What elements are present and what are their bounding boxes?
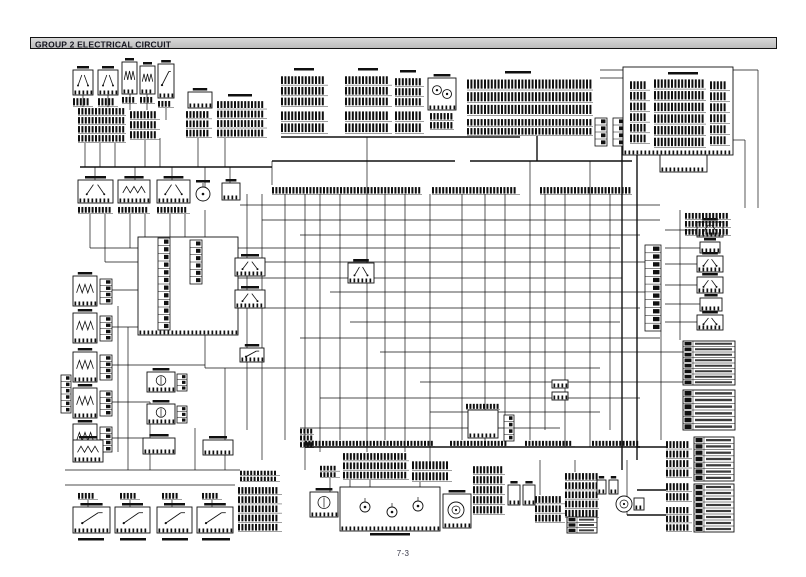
component-box (660, 155, 707, 172)
connector-strip (100, 355, 112, 380)
component-box (73, 309, 97, 343)
connector-strip (100, 316, 112, 341)
connector-pin-block (186, 111, 212, 137)
connector-pin-block (540, 187, 632, 194)
component-box (700, 238, 720, 253)
component-box (348, 259, 374, 283)
connector-strip (177, 374, 187, 391)
connector-pin-block (305, 441, 435, 447)
component-box (157, 503, 192, 533)
connector-pin-block (78, 108, 126, 142)
component-box (697, 311, 723, 330)
connector-strip (190, 240, 202, 284)
circular-component (196, 183, 210, 201)
connector-pin-block (343, 453, 409, 479)
connector-strip (645, 245, 661, 331)
connector-pin-block (345, 111, 392, 133)
connector-pin-block (78, 207, 113, 214)
component-box (609, 476, 618, 494)
connector-pin-block (467, 80, 593, 116)
component-label (370, 533, 410, 536)
connector-pin-block (158, 101, 174, 108)
component-box (98, 66, 118, 95)
component-box (468, 410, 498, 438)
component-box (523, 481, 535, 505)
connector-pin-block (281, 111, 328, 133)
component-box (310, 488, 338, 517)
connector-pin-block (412, 461, 452, 481)
component-box (73, 348, 97, 382)
component-label (358, 68, 378, 71)
circular-component (448, 502, 464, 518)
connector-pin-block (240, 471, 280, 482)
connector-pin-block (473, 466, 505, 514)
connector-pin-block (535, 496, 565, 522)
component-box (240, 344, 264, 362)
component-box (235, 254, 265, 276)
connector-pin-block (565, 473, 599, 517)
component-label (202, 538, 230, 541)
component-box (73, 384, 97, 418)
connector-pin-block (202, 493, 222, 500)
connector-strip (61, 375, 71, 413)
connector-pin-block (272, 187, 422, 194)
component-box (147, 368, 175, 392)
terminal-table (683, 390, 735, 430)
connector-pin-block (130, 111, 160, 139)
connector-pin-block (467, 119, 593, 135)
component-label (228, 94, 252, 97)
connector-pin-block (120, 493, 140, 500)
connector-pin-block (157, 207, 190, 214)
component-box (73, 66, 93, 95)
connector-pin-block (466, 404, 500, 410)
terminal-table (694, 484, 734, 532)
component-box (147, 400, 175, 424)
connector-pin-block (666, 441, 692, 477)
connector-pin-block (430, 113, 454, 129)
component-box (140, 62, 155, 94)
component-label (162, 538, 188, 541)
component-box (552, 392, 568, 400)
component-box (115, 503, 150, 533)
component-box (157, 176, 190, 203)
component-box (197, 503, 233, 533)
connector-pin-block (592, 441, 640, 447)
component-label (294, 68, 314, 71)
circular-component (616, 496, 632, 512)
connector-pin-block (320, 466, 340, 478)
terminal-table (694, 437, 734, 481)
schematic-diagram (0, 0, 806, 577)
terminal-table (567, 517, 597, 533)
connector-strip (177, 406, 187, 423)
component-label (78, 538, 104, 541)
component-box (73, 503, 110, 533)
manual-page: GROUP 2 ELECTRICAL CIRCUIT 7-3 (0, 0, 806, 577)
component-label (196, 180, 210, 183)
component-box (188, 88, 212, 108)
component-box (508, 481, 520, 505)
component-box (235, 286, 265, 308)
component-box (700, 294, 722, 311)
component-box (597, 476, 606, 494)
component-box (158, 60, 174, 98)
component-box (143, 434, 175, 454)
page-number: 7-3 (0, 549, 806, 558)
connector-strip (100, 391, 112, 416)
connector-pin-block (122, 97, 137, 104)
connector-strip (158, 238, 170, 330)
connector-pin-block (432, 187, 520, 194)
connector-pin-block (162, 493, 182, 500)
component-label (505, 71, 531, 74)
component-box (118, 176, 150, 203)
component-box (634, 498, 644, 510)
connector-pin-block (395, 78, 424, 106)
connector-pin-block (78, 493, 98, 500)
component-box (78, 176, 113, 203)
component-label (120, 538, 146, 541)
connector-pin-block (525, 441, 575, 447)
component-box (697, 273, 723, 293)
connector-pin-block (395, 111, 424, 133)
connector-pin-block (281, 76, 328, 106)
connector-pin-block (345, 76, 392, 106)
connector-pin-block (118, 207, 150, 214)
connector-strip (100, 279, 112, 304)
connector-strip (595, 118, 607, 146)
component-label (400, 70, 416, 73)
connector-pin-block (217, 101, 267, 137)
component-box (552, 380, 568, 388)
component-box (428, 74, 456, 110)
component-box (203, 436, 233, 455)
component-box (73, 272, 97, 306)
connector-pin-block (666, 483, 692, 501)
component-label (668, 72, 698, 75)
connector-pin-block (140, 97, 155, 104)
connector-strip (504, 415, 514, 441)
component-box (222, 179, 240, 200)
component-box (138, 237, 238, 335)
connector-pin-block (666, 507, 692, 532)
connector-pin-block (450, 441, 510, 447)
component-box (73, 436, 103, 462)
terminal-table (683, 341, 735, 385)
component-box (122, 58, 137, 94)
component-box (697, 252, 723, 272)
connector-pin-block (238, 487, 282, 531)
